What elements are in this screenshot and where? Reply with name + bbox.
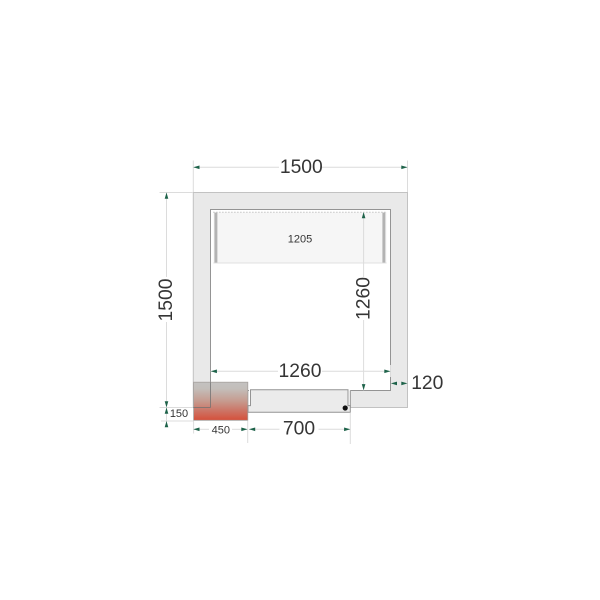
svg-text:700: 700	[283, 418, 315, 439]
svg-text:1260: 1260	[353, 277, 374, 320]
svg-text:1500: 1500	[280, 157, 323, 178]
svg-text:450: 450	[212, 425, 230, 437]
svg-text:1260: 1260	[279, 361, 322, 382]
svg-text:120: 120	[411, 373, 443, 394]
svg-text:1205: 1205	[288, 233, 312, 245]
svg-text:1500: 1500	[156, 279, 177, 322]
svg-text:150: 150	[170, 408, 188, 420]
